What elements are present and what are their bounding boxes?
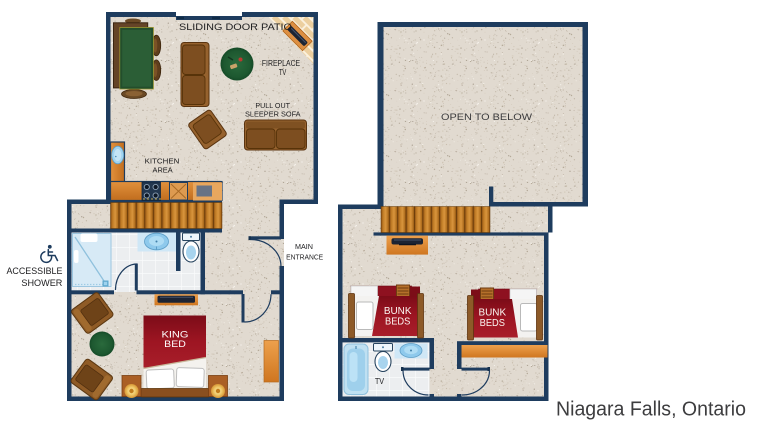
svg-text:KITCHEN: KITCHEN: [145, 157, 180, 166]
svg-text:MAIN: MAIN: [295, 242, 313, 251]
svg-text:BUNK: BUNK: [384, 306, 412, 317]
svg-text:OPEN TO BELOW: OPEN TO BELOW: [441, 112, 533, 123]
svg-text:ACCESSIBLE: ACCESSIBLE: [7, 266, 63, 276]
svg-text:SLIDING DOOR PATIO: SLIDING DOOR PATIO: [179, 22, 292, 32]
svg-text:TV: TV: [375, 376, 385, 386]
svg-text:BEDS: BEDS: [480, 318, 506, 329]
svg-text:AREA: AREA: [153, 165, 174, 174]
svg-text:FIREPLACE: FIREPLACE: [262, 58, 301, 68]
svg-text:BED: BED: [164, 339, 186, 350]
svg-text:Niagara Falls, Ontario: Niagara Falls, Ontario: [556, 399, 746, 421]
svg-text:SLEEPER SOFA: SLEEPER SOFA: [245, 110, 301, 119]
svg-text:SHOWER: SHOWER: [21, 278, 62, 288]
svg-text:ENTRANCE: ENTRANCE: [286, 253, 323, 262]
svg-text:BEDS: BEDS: [385, 316, 411, 327]
svg-text:TV: TV: [279, 68, 287, 77]
svg-text:BUNK: BUNK: [479, 307, 507, 318]
